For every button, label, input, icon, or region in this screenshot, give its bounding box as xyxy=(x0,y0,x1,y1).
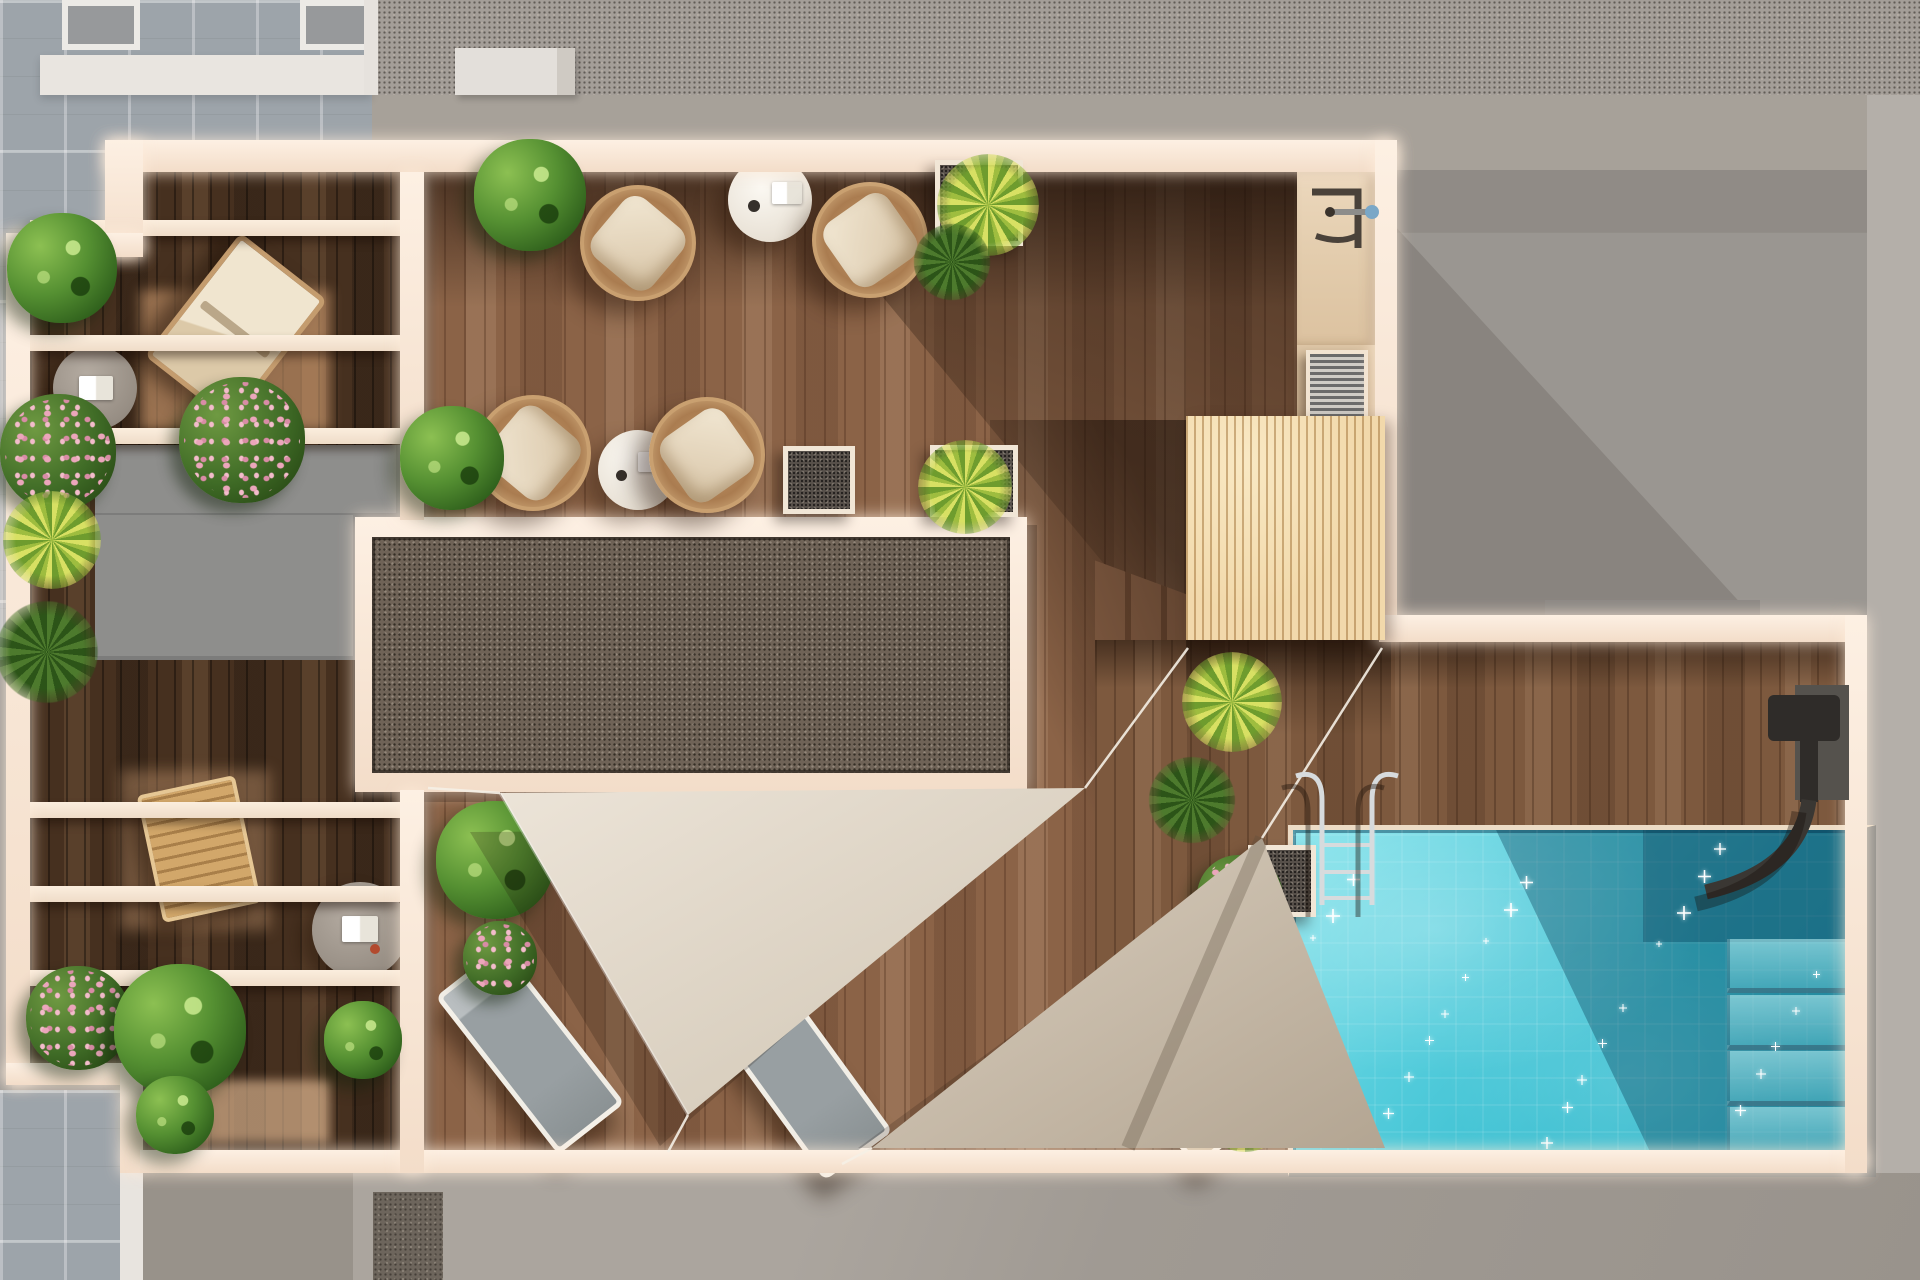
gravel-frame-shadow xyxy=(1027,525,1037,795)
water-sparkle xyxy=(1441,1010,1449,1018)
water-sparkle xyxy=(1347,873,1360,886)
water-sparkle xyxy=(1756,1069,1766,1079)
plant-leafy xyxy=(1164,944,1256,1036)
white-path-strip xyxy=(120,1173,143,1280)
plant-palm xyxy=(0,600,99,704)
water-sparkle xyxy=(1813,971,1820,978)
water-sparkle xyxy=(1368,1134,1380,1146)
water-sparkle xyxy=(1562,1102,1573,1113)
water-sparkle xyxy=(1577,1075,1587,1085)
parapet-band xyxy=(40,55,372,95)
water-sparkle xyxy=(1383,1108,1394,1119)
rooftop-plan-render xyxy=(0,0,1920,1280)
magazine xyxy=(772,182,802,204)
pergola-beam xyxy=(30,335,400,351)
neighbor-roof-slab xyxy=(1397,170,1867,618)
water-sparkle xyxy=(1310,935,1316,941)
water-sparkle xyxy=(1404,1072,1414,1082)
water-sparkles xyxy=(1293,830,1857,1160)
plant-yucca xyxy=(3,491,101,589)
gravel-panel xyxy=(372,537,1010,773)
water-sparkle xyxy=(1598,1039,1607,1048)
plant-leafy xyxy=(136,1076,214,1154)
water-sparkle xyxy=(1619,1004,1627,1012)
water-sparkle xyxy=(1520,876,1533,889)
snack xyxy=(370,944,380,954)
water-sparkle xyxy=(1771,1042,1780,1051)
paving-tiles-bottom-left xyxy=(0,1090,120,1280)
open-book xyxy=(342,916,378,942)
plant-palm xyxy=(913,223,991,301)
gravel-frame-shadow xyxy=(363,792,1029,802)
plant-leafy xyxy=(324,1001,402,1079)
swimming-pool xyxy=(1288,825,1876,1177)
water-sparkle xyxy=(1698,870,1711,883)
parapet-edge xyxy=(364,0,378,95)
slab-shadow xyxy=(1397,170,1867,618)
shower-nook-pad xyxy=(1297,172,1375,345)
plant-bush xyxy=(7,213,117,323)
water-sparkle xyxy=(1792,1007,1800,1015)
wicker-chair xyxy=(812,182,928,298)
water-sparkle xyxy=(1714,843,1726,855)
plant-pink-flowers xyxy=(463,921,537,995)
plant-pink-flowers xyxy=(1197,855,1283,941)
stair-bulkhead-lower xyxy=(95,515,357,660)
plant-bush xyxy=(436,801,554,919)
plant-yucca xyxy=(1198,1058,1292,1152)
slab-diagonal-shadow xyxy=(1397,170,1867,618)
street-band-top xyxy=(372,0,1920,95)
plant-pink-flowers xyxy=(179,377,305,503)
plant-bush xyxy=(400,406,504,510)
roof-vent xyxy=(62,0,140,50)
plant-yucca xyxy=(1182,652,1282,752)
bottom-gravel-bed xyxy=(373,1192,443,1280)
water-sparkle xyxy=(1656,941,1662,947)
water-sparkle xyxy=(1735,1105,1746,1116)
perimeter-wall-top xyxy=(105,140,1397,172)
planter-box xyxy=(783,446,855,514)
water-sparkle xyxy=(1677,906,1691,920)
plant-bush xyxy=(474,139,586,251)
water-sparkle xyxy=(1326,909,1340,923)
bottom-dark-slab xyxy=(143,1173,353,1280)
rooftop-unit xyxy=(455,48,575,95)
wicker-chair xyxy=(649,397,765,513)
pergola-beam xyxy=(30,886,400,902)
water-sparkle xyxy=(1483,938,1489,944)
plant-yucca xyxy=(918,440,1012,534)
divider-wall-lower xyxy=(400,790,424,1173)
plant-palm xyxy=(1148,756,1236,844)
timber-canopy-box xyxy=(1186,416,1385,640)
open-book xyxy=(79,376,113,400)
pergola-beam xyxy=(30,802,400,818)
water-sparkle xyxy=(1425,1036,1434,1045)
water-sparkle xyxy=(1462,974,1469,981)
cup xyxy=(616,470,627,481)
wicker-chair xyxy=(580,185,696,301)
water-sparkle xyxy=(1504,903,1518,917)
pool-terrace-east-wall xyxy=(1845,615,1867,1173)
cup xyxy=(748,200,760,212)
water-sparkle xyxy=(1541,1137,1553,1149)
vent-louver-grille xyxy=(1306,350,1368,422)
pool-terrace-top-wall xyxy=(1379,615,1847,642)
